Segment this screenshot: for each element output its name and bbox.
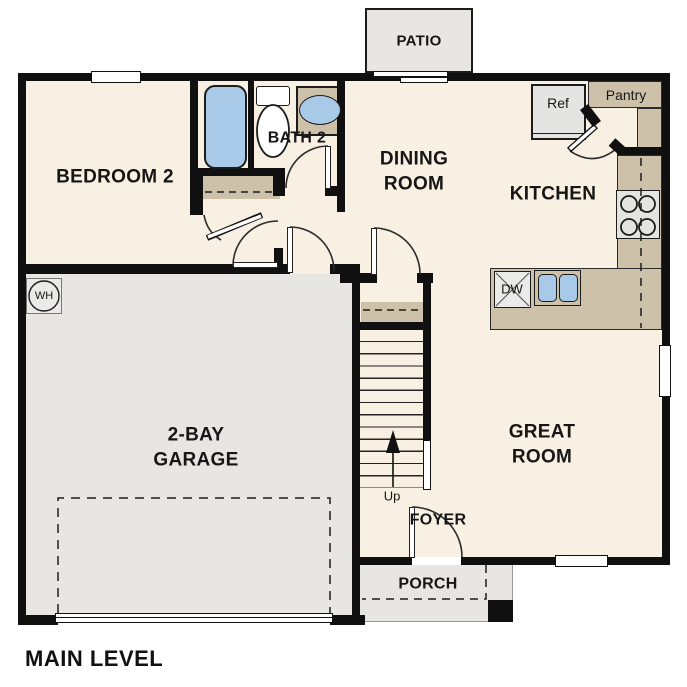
label-water-heater: WH (35, 289, 53, 303)
label-refrigerator: Ref (547, 94, 569, 112)
room-label-porch: PORCH (398, 575, 457, 596)
room-label-kitchen: KITCHEN (510, 183, 597, 208)
door-arc-pantry (570, 149, 616, 159)
floor-plan: PATIO BEDROOM 2 BATH 2 DINING ROOM KITCH… (0, 0, 687, 687)
page-title: MAIN LEVEL (25, 646, 163, 672)
stove-burners (621, 196, 655, 235)
garage-door-dash (58, 498, 330, 613)
room-label-foyer: FOYER (410, 511, 467, 532)
door-arc-bedroom (233, 221, 278, 266)
room-label-dining: DINING ROOM (380, 147, 448, 196)
label-dishwasher: DW (501, 282, 523, 299)
room-label-patio: PATIO (396, 31, 441, 51)
door-arc-bath (286, 146, 328, 188)
stairs-up-arrow (386, 430, 400, 487)
door-arc-garage-entry (290, 227, 334, 271)
door-arc-coat-closet (374, 228, 420, 274)
door-leaf-pantry-diagonal (569, 126, 596, 150)
wall-pantry-wedge (584, 107, 597, 124)
room-label-bath2: BATH 2 (268, 129, 326, 150)
room-label-garage: 2-BAY GARAGE (153, 423, 238, 472)
room-label-great-room: GREAT ROOM (509, 420, 576, 469)
door-leaf-closet-diagonal (207, 215, 262, 238)
label-pantry: Pantry (606, 86, 646, 104)
plan-linework (0, 0, 687, 687)
label-stairs-up: Up (384, 489, 401, 506)
room-label-bedroom2: BEDROOM 2 (56, 166, 174, 191)
wall-pantry-wedge (612, 142, 622, 151)
